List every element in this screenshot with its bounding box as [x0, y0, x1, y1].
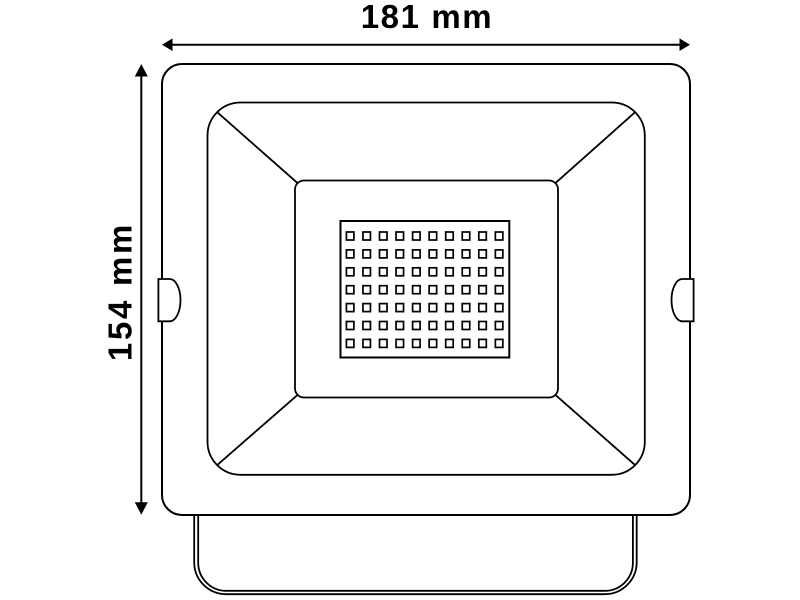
svg-text:181 mm: 181 mm: [361, 0, 494, 35]
svg-text:154 mm: 154 mm: [102, 222, 139, 361]
